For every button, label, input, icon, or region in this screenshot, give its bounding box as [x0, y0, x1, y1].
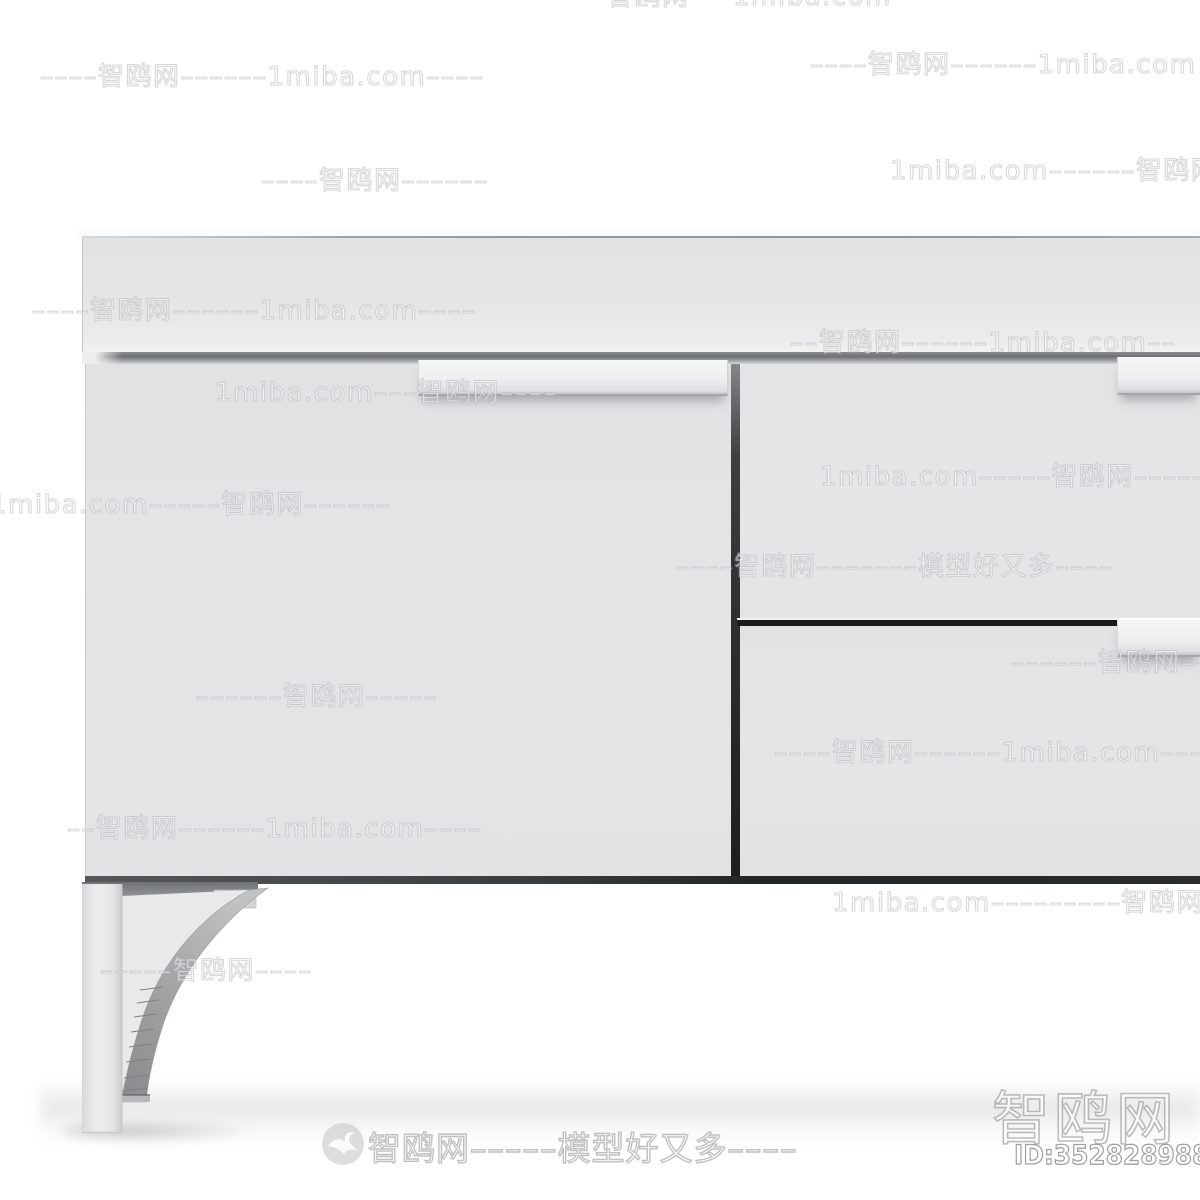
site-logo-icon [321, 1122, 365, 1166]
watermark-layer: ––––––智鸥网–––1miba.com––––––––––智鸥网––––––… [0, 0, 1200, 1200]
watermark-tile: 1miba.com–––––智鸥网–––––– [820, 462, 1200, 492]
watermark-tile: ––––智鸥网––––––1miba.com [810, 50, 1196, 80]
watermark-tile: 1miba.com–––智鸥网–––– [215, 378, 558, 408]
model-id-text: ID:352828988 [1014, 1140, 1200, 1171]
watermark-tile: 1miba.com––––––智鸥网–– [890, 156, 1200, 186]
watermark-tile: 1miba.com–––––智鸥网–––––– [0, 490, 391, 520]
watermark-tile: ––––––智鸥网––––– [196, 682, 438, 712]
watermark-tile: ––智鸥网––––––1miba.com–– [790, 328, 1176, 358]
watermark-tile: ––––––智鸥网–––1miba.com–––––– [520, 0, 979, 12]
watermark-tile: ––––智鸥网––––––1miba.com–––– [774, 738, 1200, 768]
product-render-image: ––––––智鸥网–––1miba.com––––––––––智鸥网––––––… [0, 0, 1200, 1200]
footer-watermark-text: 智鸥网–––––模型好又多–––– [368, 1122, 798, 1170]
watermark-tile: ––––智鸥网–––––– [261, 166, 489, 196]
watermark-tile: ––智鸥网––––––1miba.com–––– [67, 814, 482, 844]
watermark-tile: ––––––智鸥网–– [1011, 648, 1200, 678]
watermark-tile: ––––智鸥网–––––––模型好又多–––– [676, 552, 1114, 582]
watermark-tile: –––––智鸥网–––– [100, 956, 313, 986]
watermark-tile: 1miba.com–––––––––智鸥网–– [832, 888, 1200, 918]
watermark-tile: ––––智鸥网––––––1miba.com–––– [32, 296, 476, 326]
watermark-tile: ––––智鸥网––––––1miba.com–––– [40, 62, 484, 92]
